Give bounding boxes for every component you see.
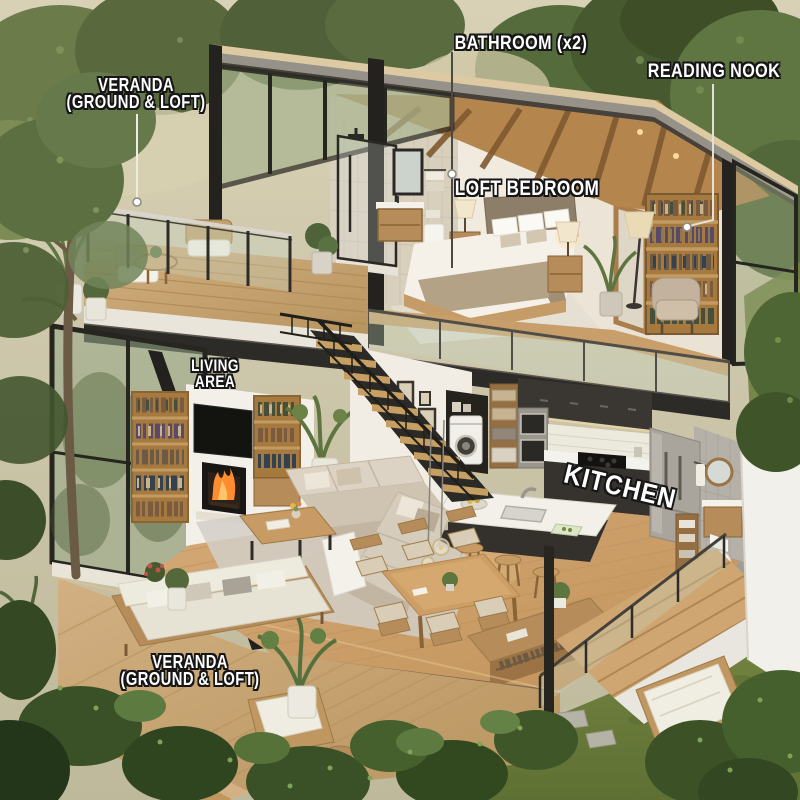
utensil-crock — [634, 447, 642, 457]
pantry-shelf — [490, 384, 518, 468]
label-reading-nook: READING NOOK — [648, 61, 781, 83]
label-loft-bedroom: LOFT BEDROOM — [455, 177, 600, 201]
vanity-top — [376, 202, 424, 209]
deck-planter — [165, 568, 189, 610]
wall-tv — [194, 404, 252, 458]
bathroom-mirror — [394, 150, 422, 194]
label-veranda-ground: VERANDA (GROUND & LOFT) — [121, 654, 260, 688]
living-bookshelf-left — [132, 392, 188, 522]
label-bathroom: BATHROOM (x2) — [455, 33, 588, 55]
picture-frame — [420, 392, 430, 405]
pillow — [518, 213, 544, 232]
leader-dot-reading-nook — [683, 223, 691, 231]
frame-post-right — [722, 158, 734, 366]
flush-plate — [426, 210, 440, 218]
towel — [426, 172, 444, 180]
rain-shower-head — [348, 134, 364, 139]
bath-vanity — [704, 507, 742, 537]
label-veranda-loft: VERANDA (GROUND & LOFT) — [67, 77, 206, 111]
bedside-lamp-left — [454, 200, 476, 218]
leader-dot-veranda-loft — [133, 198, 141, 206]
shower-glass — [338, 136, 396, 266]
label-line: (GROUND & LOFT) — [121, 671, 260, 688]
pillow — [492, 217, 518, 236]
towel — [696, 464, 705, 486]
sofa-pillow — [336, 467, 362, 486]
house-cutaway-illustration: VERANDA (GROUND & LOFT) BATHROOM (x2) RE… — [0, 0, 800, 800]
label-living-area: LIVING AREA — [191, 358, 239, 390]
towel — [426, 182, 444, 191]
glass-wall-post — [544, 545, 554, 714]
round-mirror — [706, 459, 732, 485]
sofa-pillow — [304, 471, 330, 490]
label-line: (GROUND & LOFT) — [67, 94, 206, 111]
label-line: AREA — [191, 374, 239, 390]
bedside-lamp-right — [556, 222, 580, 242]
